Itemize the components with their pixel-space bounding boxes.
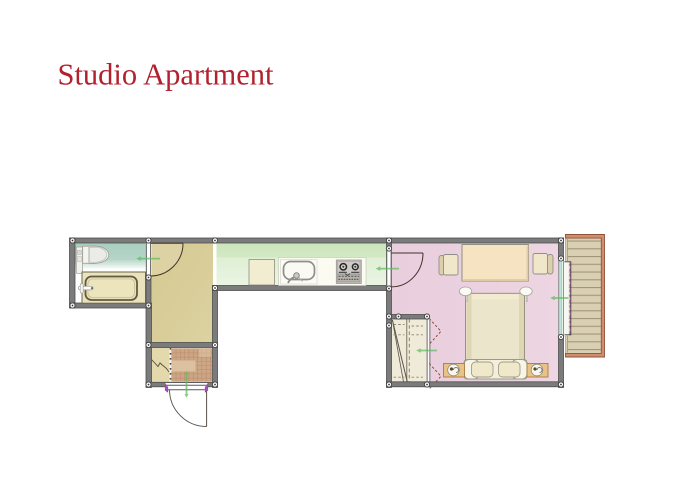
svg-text:Studio Apartment: Studio Apartment <box>58 58 275 92</box>
